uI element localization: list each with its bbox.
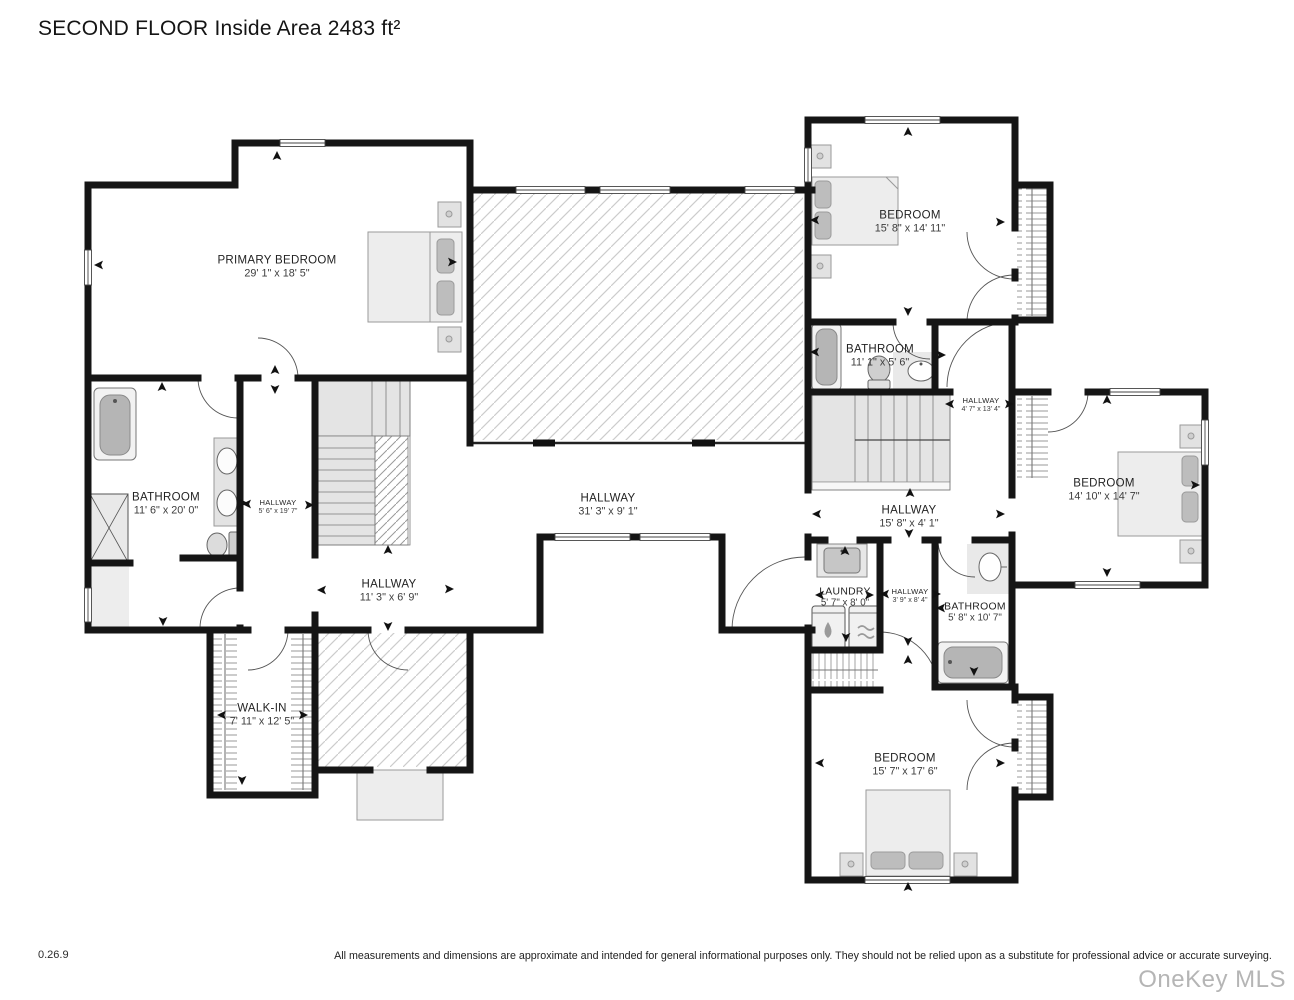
room-dims: 31' 3" x 9' 1"	[578, 505, 637, 517]
washer-icon	[812, 606, 845, 650]
room-name: HALLWAY	[578, 493, 637, 506]
room-label-hallway-sw: HALLWAY 11' 3" x 6' 9"	[360, 579, 418, 604]
room-dims: 5' 7" x 8' 0"	[819, 598, 871, 609]
room-name: PRIMARY BEDROOM	[217, 255, 336, 268]
room-name: BATHROOM	[132, 492, 200, 505]
room-dims: 11' 3" x 6' 9"	[360, 591, 418, 603]
version-text: 0.26.9	[38, 949, 69, 961]
room-label-primary-bedroom: PRIMARY BEDROOM 29' 1" x 18' 5"	[217, 255, 336, 280]
room-dims: 15' 8" x 14' 11"	[875, 222, 945, 234]
shower-icon	[90, 494, 128, 562]
room-dims: 11' 6" x 20' 0"	[132, 504, 200, 516]
room-dims: 11' 1" x 5' 6"	[846, 356, 914, 368]
room-dims: 5' 8" x 10' 7"	[944, 613, 1006, 624]
toilet-icon	[207, 532, 240, 558]
room-dims: 7' 11" x 12' 5"	[230, 715, 294, 727]
room-label-hallway-mid: HALLWAY 3' 9" x 8' 4"	[892, 588, 929, 604]
room-name: WALK-IN	[230, 703, 294, 716]
room-name: HALLWAY	[360, 579, 418, 592]
room-label-bedroom-south: BEDROOM 15' 7" x 17' 6"	[872, 753, 937, 778]
room-dims: 15' 8" x 4' 1"	[879, 517, 938, 529]
room-label-hallway-center: HALLWAY 31' 3" x 9' 1"	[578, 493, 637, 518]
room-dims: 15' 7" x 17' 6"	[872, 765, 937, 777]
room-dims: 29' 1" x 18' 5"	[217, 267, 336, 279]
room-dims: 14' 10" x 14' 7"	[1068, 490, 1139, 502]
laundry-sink-icon	[817, 544, 867, 577]
room-name: BATHROOM	[944, 602, 1006, 614]
room-name: BATHROOM	[846, 344, 914, 357]
room-label-bedroom-east: BEDROOM 14' 10" x 14' 7"	[1068, 478, 1139, 503]
room-label-hallway-ne: HALLWAY 4' 7" x 13' 4"	[962, 397, 1001, 413]
room-label-laundry: LAUNDRY 5' 7" x 8' 0"	[819, 587, 871, 610]
sink-icon	[979, 553, 1001, 581]
floor-plan-page: SECOND FLOOR Inside Area 2483 ft²	[0, 0, 1294, 1000]
room-dims: 4' 7" x 13' 4"	[962, 405, 1001, 413]
room-dims: 5' 6" x 19' 7"	[259, 507, 298, 515]
disclaimer-text: All measurements and dimensions are appr…	[313, 950, 1293, 962]
railing	[470, 440, 806, 447]
room-name: BEDROOM	[875, 210, 945, 223]
room-label-bathroom-west: BATHROOM 11' 6" x 20' 0"	[132, 492, 200, 517]
watermark-onekey-mls: OneKey MLS	[1138, 966, 1286, 994]
room-label-walk-in: WALK-IN 7' 11" x 12' 5"	[230, 703, 294, 728]
sink-icon	[217, 448, 237, 474]
room-label-hallway-east: HALLWAY 15' 8" x 4' 1"	[879, 505, 938, 530]
room-dims: 3' 9" x 8' 4"	[892, 596, 929, 604]
room-label-bathroom-se: BATHROOM 5' 8" x 10' 7"	[944, 602, 1006, 625]
room-label-hallway-west: HALLWAY 5' 6" x 19' 7"	[259, 499, 298, 515]
room-name: HALLWAY	[879, 505, 938, 518]
room-name: BEDROOM	[1068, 478, 1139, 491]
sink-icon	[217, 490, 237, 516]
room-name: LAUNDRY	[819, 587, 871, 599]
room-label-bathroom-ne: BATHROOM 11' 1" x 5' 6"	[846, 344, 914, 369]
room-name: BEDROOM	[872, 753, 937, 766]
room-label-bedroom-ne: BEDROOM 15' 8" x 14' 11"	[875, 210, 945, 235]
